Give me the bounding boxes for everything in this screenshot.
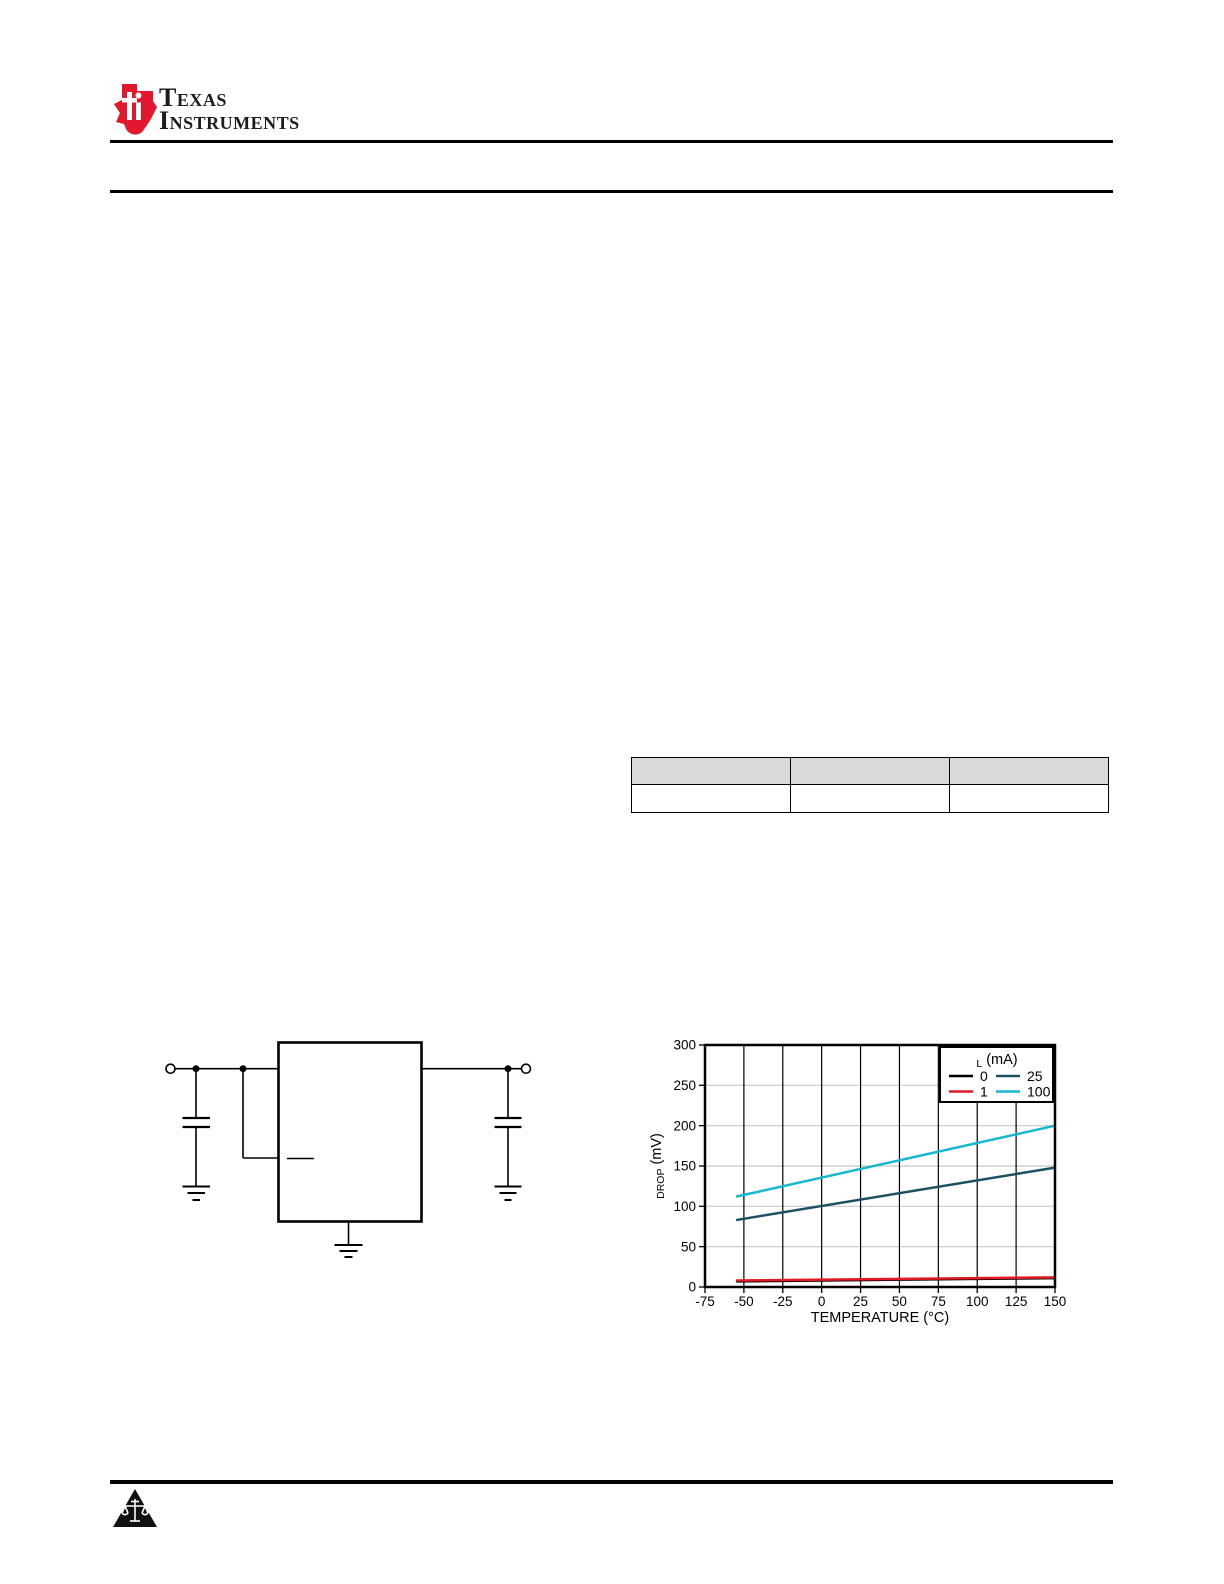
y-tick-label: 300 — [673, 1038, 696, 1053]
series-line-100 — [736, 1126, 1055, 1197]
x-tick-label: -75 — [695, 1294, 715, 1309]
junction-dot — [240, 1065, 247, 1072]
legend-label: 0 — [980, 1068, 988, 1084]
output-terminal — [522, 1064, 531, 1073]
footer-rule — [110, 1480, 1113, 1484]
x-tick-label: -50 — [734, 1294, 754, 1309]
x-tick-label: -25 — [773, 1294, 793, 1309]
x-tick-label: 50 — [892, 1294, 907, 1309]
legend-label: 100 — [1027, 1083, 1051, 1099]
series-line-25 — [736, 1168, 1055, 1220]
y-tick-label: 100 — [673, 1199, 696, 1214]
header-rule-top — [110, 140, 1113, 143]
x-tick-label: 0 — [818, 1294, 826, 1309]
x-tick-label: 25 — [853, 1294, 868, 1309]
table-cell — [950, 785, 1109, 813]
ti-bug-icon — [112, 83, 158, 137]
y-tick-label: 50 — [681, 1239, 696, 1254]
legend-label: 25 — [1027, 1068, 1043, 1084]
x-tick-label: 125 — [1005, 1294, 1028, 1309]
junction-dot — [193, 1065, 200, 1072]
y-tick-label: 200 — [673, 1118, 696, 1133]
x-tick-label: 100 — [966, 1294, 989, 1309]
brand-wordmark: Texas Instruments — [159, 86, 300, 132]
x-axis-title: TEMPERATURE (°C) — [811, 1310, 949, 1326]
scales-triangle-icon — [112, 1488, 158, 1529]
table-header-row — [632, 758, 1109, 785]
y-tick-label: 0 — [688, 1280, 696, 1295]
y-tick-label: 250 — [673, 1078, 696, 1093]
table-header-cell — [632, 758, 791, 785]
legend-label: 1 — [980, 1083, 988, 1099]
table-header-cell — [791, 758, 950, 785]
table-cell — [791, 785, 950, 813]
brand-line2: Instruments — [159, 109, 300, 132]
y-axis-title: VDROP (mV) — [649, 1133, 667, 1199]
y-tick-label: 150 — [673, 1159, 696, 1174]
input-terminal — [166, 1064, 175, 1073]
application-circuit-figure — [140, 1010, 580, 1272]
regulator-ic-box — [279, 1043, 422, 1222]
vdrop-vs-temperature-chart: -75-50-250255075100125150050100150200250… — [630, 1015, 1100, 1345]
x-tick-label: 150 — [1044, 1294, 1067, 1309]
table-cell — [632, 785, 791, 813]
header-rule-bottom — [110, 190, 1113, 193]
x-tick-label: 75 — [931, 1294, 946, 1309]
junction-dot — [505, 1065, 512, 1072]
info-table — [631, 757, 1109, 813]
series-line-1 — [736, 1277, 1055, 1280]
table-row — [632, 785, 1109, 813]
datasheet-page: Texas Instruments — [0, 0, 1224, 1584]
table-header-cell — [950, 758, 1109, 785]
